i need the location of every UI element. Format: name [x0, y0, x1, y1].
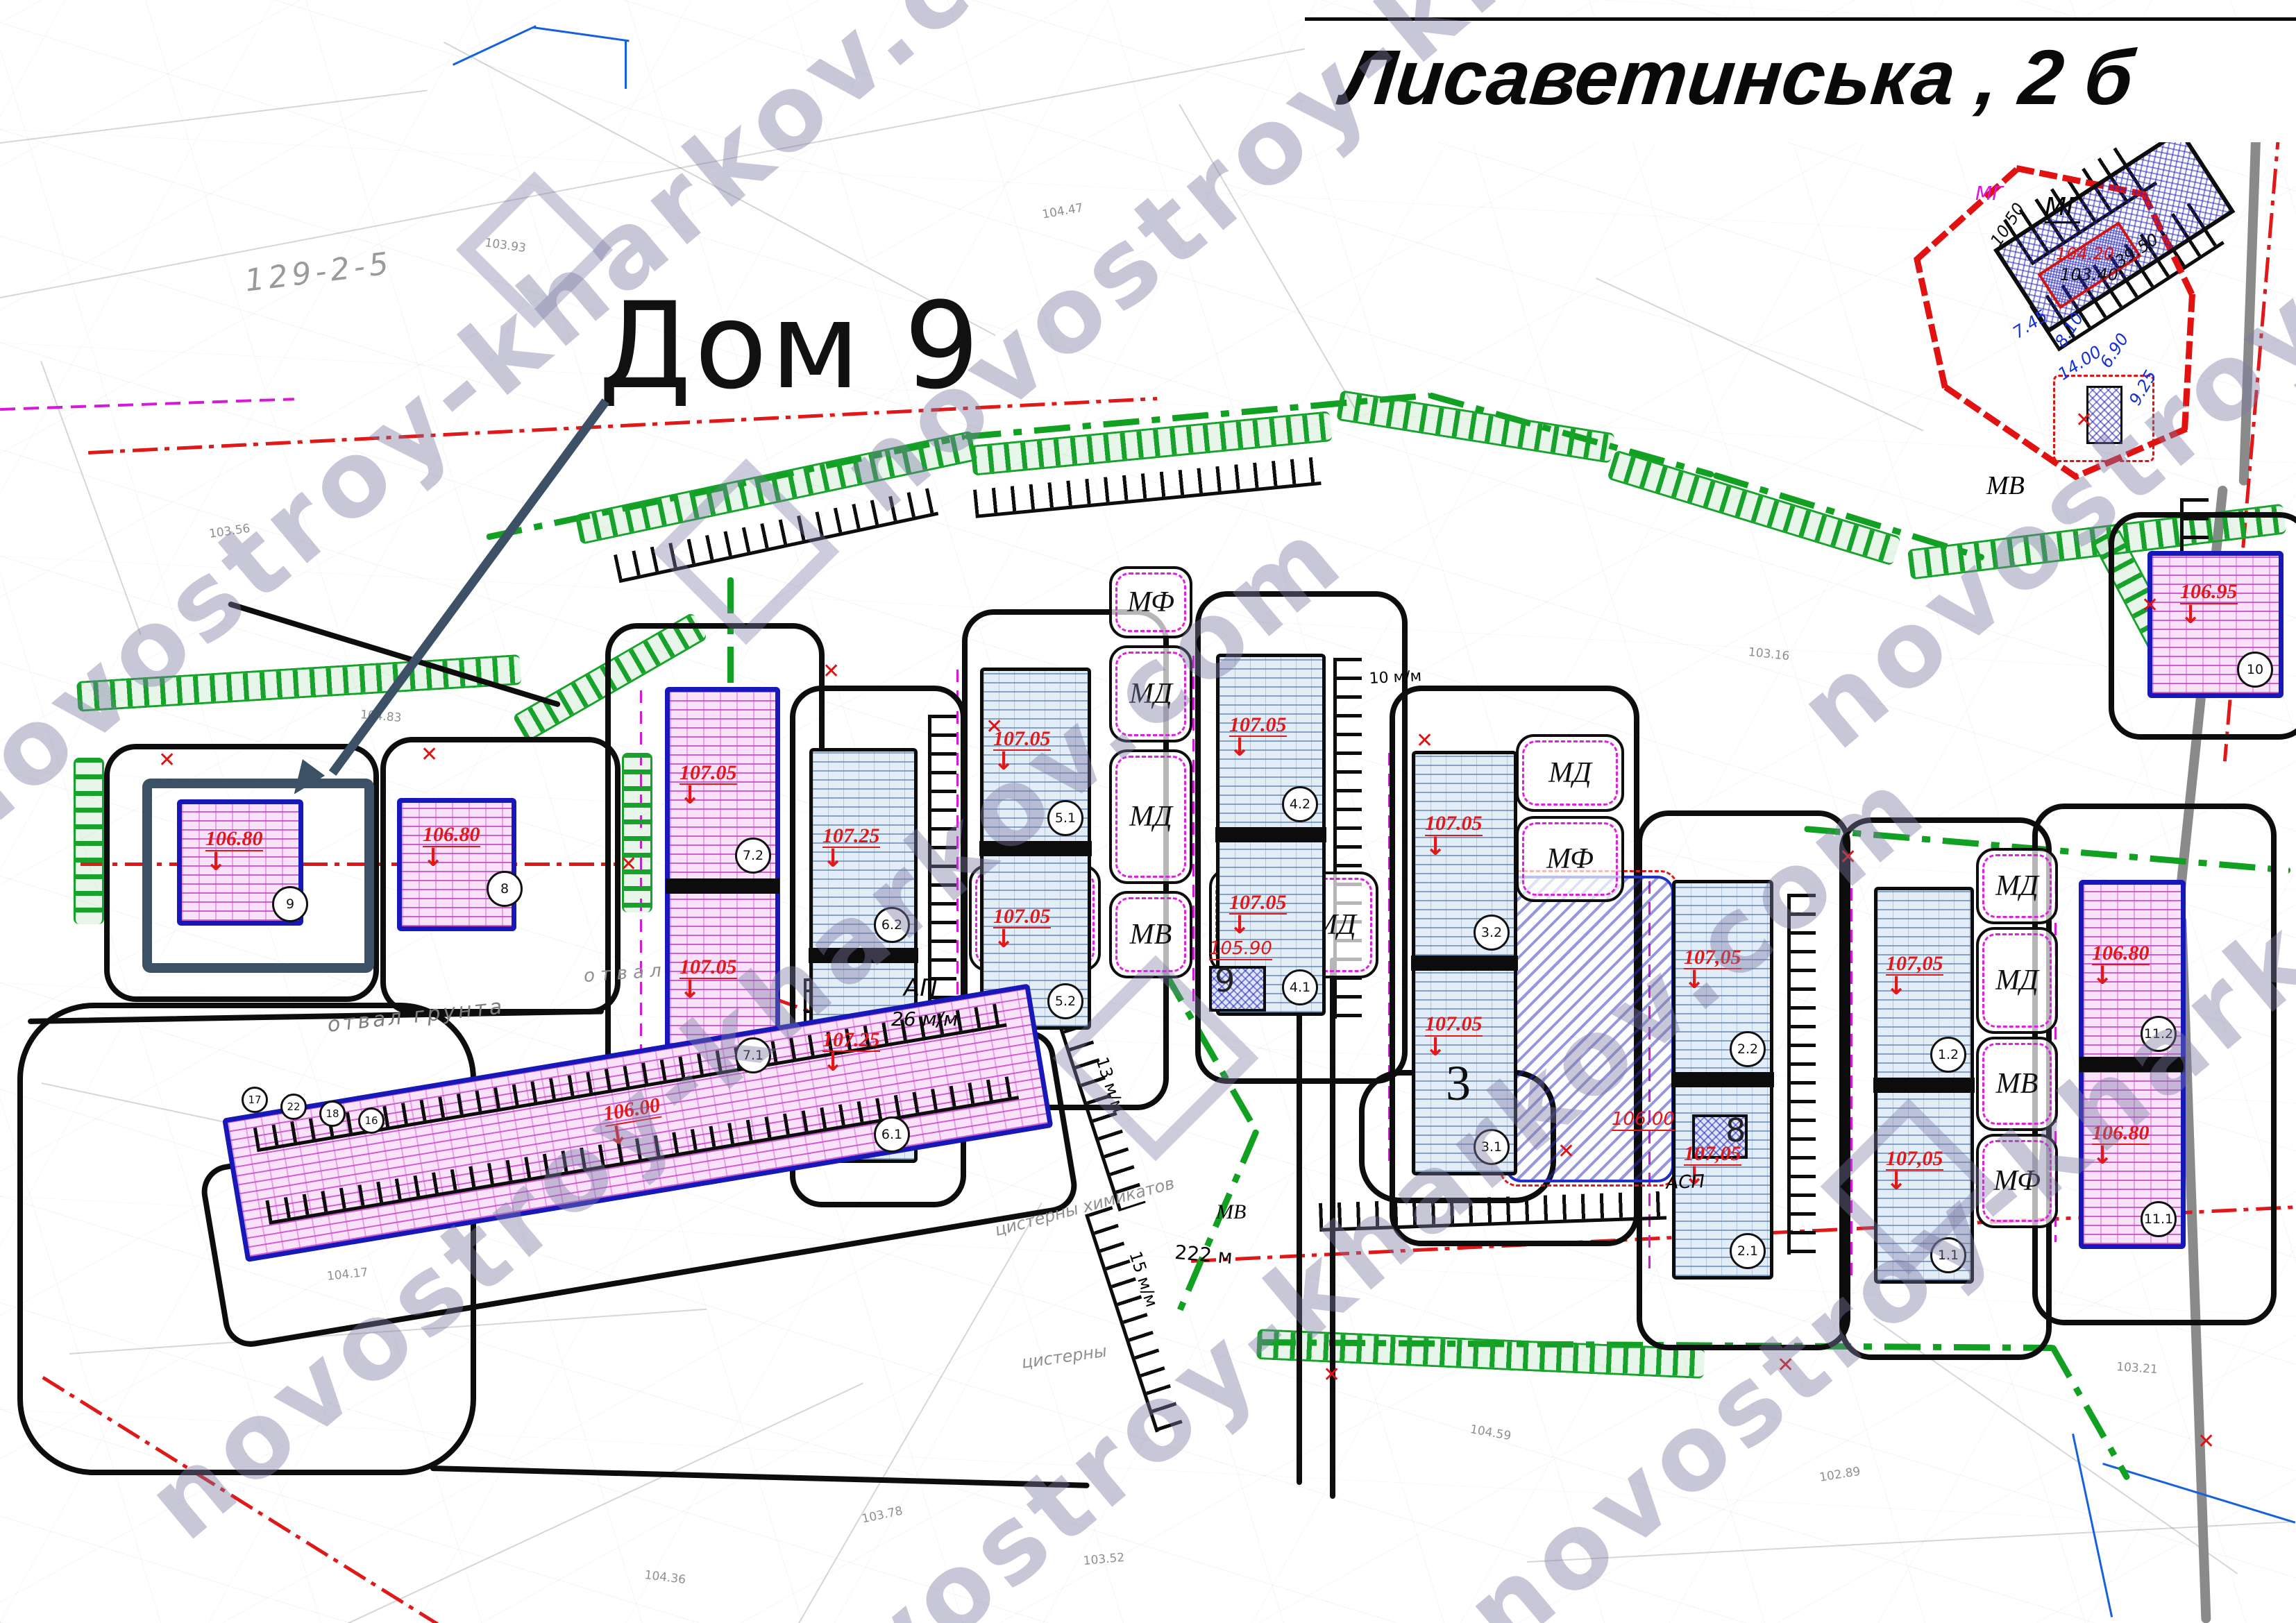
red-x-mark: ✕ — [1777, 1353, 1794, 1377]
section-bubble: 4.2 — [1282, 786, 1318, 822]
red-x-mark: ✕ — [1416, 729, 1433, 753]
section-divider — [979, 841, 1092, 856]
elevation-label: 106.80↓ — [423, 824, 480, 869]
section-bubble: 11.2 — [2141, 1016, 2177, 1052]
substation-number: 9 — [1215, 962, 1235, 999]
down-arrow-icon: ↓ — [2180, 604, 2201, 627]
section-bubble: 5.1 — [1047, 800, 1083, 836]
elevation-label: 106.80↓ — [2092, 1122, 2150, 1168]
building-8: 106.80↓ 8 — [397, 798, 516, 931]
building-number-large: 3 — [1446, 1055, 1471, 1112]
playground-label: МД — [1979, 930, 2055, 1031]
playground-mv-label: МВ — [1986, 470, 2025, 501]
axis-bubble: 22 — [280, 1094, 307, 1120]
down-arrow-icon: ↓ — [1425, 836, 1446, 858]
section-bubble: 7.2 — [735, 838, 771, 874]
parking-label-ap: АП — [904, 974, 938, 1002]
section-divider — [1411, 955, 1518, 971]
survey-number: 103.21 — [2116, 1360, 2159, 1377]
red-x-mark: ✕ — [1558, 1139, 1575, 1164]
site-plan-page: 103.56 104.83 103.78 104.36 103.52 104.5… — [0, 0, 2296, 1623]
down-arrow-icon: ↓ — [679, 979, 700, 1001]
red-x-mark: ✕ — [2075, 408, 2093, 432]
substation-elevation: 105.90 — [1209, 938, 1272, 960]
playground-md: МД — [1109, 645, 1192, 742]
building-3: 107.05↓ 3.2 107.05↓ 3 3.1 — [1412, 751, 1517, 1175]
section-divider — [809, 948, 918, 963]
axis-bubble: 17 — [242, 1087, 268, 1113]
substation-9: 9 — [1209, 966, 1266, 1012]
playground-mv-label: МВ — [1216, 1200, 1246, 1224]
callout-label-dom9: Дом 9 — [598, 276, 982, 416]
red-x-mark: ✕ — [2141, 593, 2159, 618]
elevation-label: 107.25↓ — [822, 825, 880, 871]
elevation-label: 107,05↓ — [1684, 946, 1741, 992]
page-title: Лисаветинська , 2 б — [1338, 33, 2138, 122]
section-divider — [1671, 1072, 1774, 1087]
parking-label-asp: АСП — [1666, 1171, 1705, 1193]
down-arrow-icon: ↓ — [822, 848, 843, 870]
elevation-label: 107.05↓ — [1425, 813, 1483, 858]
down-arrow-icon: ↓ — [1886, 976, 1907, 998]
down-arrow-icon: ↓ — [423, 847, 444, 869]
section-bubble: 11.1 — [2141, 1201, 2177, 1237]
down-arrow-icon: ↓ — [605, 1123, 630, 1149]
playground-label: МД — [1112, 648, 1190, 740]
red-x-mark: ✕ — [1323, 1363, 1340, 1387]
building-2: 107,05↓ 2.2 107,05↓ 2.1 — [1672, 880, 1773, 1280]
playground-label: МФ — [1112, 569, 1190, 636]
section-bubble: 4.1 — [1282, 969, 1318, 1005]
red-x-mark: ✕ — [1839, 845, 1857, 869]
down-arrow-icon: ↓ — [993, 928, 1014, 951]
playground-mf: МФ — [1516, 816, 1624, 902]
elevation-label: 107.05↓ — [993, 906, 1051, 951]
section-divider — [2079, 1057, 2185, 1072]
elevation-label: 106.95↓ — [2180, 581, 2238, 627]
playground-md: МД — [1976, 848, 2058, 924]
building-11: 106.80↓ 11.2 106.80↓ 11.1 — [2079, 880, 2186, 1249]
elevation-label: 107.05↓ — [679, 956, 737, 1002]
mg-label: МГ — [2045, 193, 2080, 223]
down-arrow-icon: ↓ — [1684, 969, 1705, 992]
elevation-label: 107.05↓ — [1229, 714, 1287, 760]
section-divider — [1215, 827, 1326, 842]
section-bubble: 3.1 — [1474, 1129, 1510, 1165]
mg-label-magenta: МГ — [1975, 182, 2003, 205]
down-arrow-icon: ↓ — [1229, 737, 1250, 759]
section-bubble: 2.1 — [1730, 1233, 1766, 1269]
axis-bubble: 18 — [319, 1101, 346, 1127]
section-bubble: 7.1 — [735, 1037, 771, 1073]
red-x-mark: ✕ — [822, 659, 840, 683]
parking-capacity-label: 26 м/м — [891, 1008, 958, 1030]
work-zone-hatched — [1505, 876, 1674, 1182]
playground-mv: МВ — [1976, 1037, 2058, 1131]
down-arrow-icon: ↓ — [679, 785, 700, 807]
red-x-mark: ✕ — [158, 748, 176, 772]
section-bubble: 5.2 — [1047, 983, 1083, 1019]
parking-row — [1787, 894, 1816, 1255]
section-bubble: 2.2 — [1730, 1031, 1766, 1067]
playground-label: МД — [1979, 851, 2055, 921]
elevation-value: 106.00 — [602, 1094, 662, 1127]
building-10: 106.95↓ 10 — [2147, 551, 2284, 698]
section-bubble: 3.2 — [1474, 915, 1510, 951]
playground-md: МД — [1109, 749, 1192, 884]
elevation-note: 103.40 — [2060, 265, 2118, 284]
playground-md: МД — [1516, 734, 1624, 812]
playground-mf: МФ — [1109, 566, 1192, 638]
section-divider — [666, 878, 779, 894]
road-line — [1297, 958, 1302, 1485]
section-bubble: 6.2 — [874, 907, 910, 943]
slope-hatch — [74, 758, 104, 924]
elevation-note-red: 104.20 — [2056, 244, 2114, 264]
section-divider — [1873, 1078, 1975, 1093]
elevation-label: 106.00↓ — [602, 1094, 666, 1149]
playground-label: МД — [1519, 737, 1621, 809]
down-arrow-icon: ↓ — [993, 751, 1014, 773]
substation-elevation: 106.00 — [1612, 1109, 1675, 1131]
playground-label: МФ — [1519, 819, 1621, 899]
elevation-label: 107.05↓ — [679, 762, 737, 808]
building-9-highlight-box — [142, 779, 374, 973]
playground-md: МД — [1976, 927, 2058, 1034]
red-x-mark: ✕ — [2197, 1429, 2215, 1454]
down-arrow-icon: ↓ — [1425, 1037, 1446, 1059]
playground-label: МВ — [1979, 1039, 2055, 1128]
building-number-bubble: 10 — [2237, 652, 2273, 688]
elevation-label: 106.80↓ — [2092, 942, 2150, 988]
magenta-dim-line — [1192, 656, 1195, 1010]
building-number-bubble: 8 — [487, 871, 523, 907]
banner-top-line — [1305, 17, 2296, 21]
section-bubble: 6.1 — [874, 1116, 910, 1153]
axis-bubble: 16 — [358, 1107, 385, 1134]
elevation-label: 107,05↓ — [1886, 953, 1943, 999]
title-banner: Лисаветинська , 2 б — [1305, 17, 2296, 142]
red-x-mark: ✕ — [620, 852, 637, 876]
down-arrow-icon: ↓ — [1229, 915, 1250, 937]
elevation-label: 107.05↓ — [1229, 892, 1287, 937]
blue-boundary-line — [625, 40, 627, 89]
parking-capacity-label: 10 м/м — [1369, 668, 1422, 688]
down-arrow-icon: ↓ — [2092, 965, 2113, 987]
red-x-mark: ✕ — [421, 742, 438, 767]
red-x-mark: ✕ — [986, 715, 1003, 739]
elevation-label: 107.05↓ — [1425, 1013, 1483, 1059]
playground-label: МД — [1112, 752, 1190, 881]
building-7: 107.05↓ 7.2 107.05↓ 7.1 — [665, 687, 780, 1085]
elevation-label: 107.25↓ — [822, 1029, 880, 1075]
section-bubble: 1.2 — [1930, 1037, 1966, 1073]
down-arrow-icon: ↓ — [822, 1052, 843, 1074]
down-arrow-icon: ↓ — [2092, 1145, 2113, 1167]
